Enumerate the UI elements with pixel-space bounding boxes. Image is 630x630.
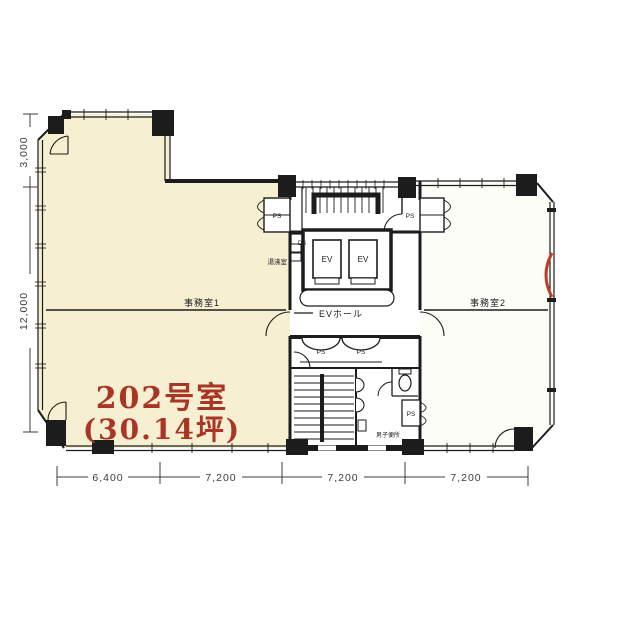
elevator-bank	[291, 230, 394, 306]
pipe-shaft-niche-right-label: PS	[357, 349, 366, 356]
pipe-shaft-lower-right-label: PS	[407, 411, 416, 418]
floor-plan-page: 事務室1 事務室2 EVホール 湯沸室 男子便所 EV EV PS PS PS …	[0, 0, 630, 630]
dim-bottom-4: 7,200	[450, 472, 481, 484]
office2-label: 事務室2	[470, 297, 506, 308]
pipe-shaft-upper-left-label: PS	[273, 213, 282, 220]
dim-bottom-2: 7,200	[205, 472, 236, 484]
pipe-shaft-upper-right-label: PS	[406, 213, 415, 220]
dim-left-top: 3,000	[18, 136, 30, 167]
office1-label: 事務室1	[184, 297, 220, 308]
mens-toilet-label: 男子便所	[376, 431, 400, 439]
floor-plan-drawing: 事務室1 事務室2 EVホール 湯沸室 男子便所 EV EV PS PS PS …	[0, 0, 630, 630]
dim-bottom-3: 7,200	[327, 472, 358, 484]
dim-left-main: 12,000	[18, 292, 30, 330]
unit-number-label: 202号室	[96, 381, 229, 416]
ev-hall-label: EVホール	[319, 309, 363, 319]
dim-bottom-1: 6,400	[92, 472, 123, 484]
unit-area-label: (30.14坪)	[83, 413, 241, 446]
elevator-1-label: EV	[322, 255, 333, 264]
kitchenette-label: 湯沸室	[268, 257, 288, 266]
duct-shaft-label: DS	[298, 241, 306, 247]
elevator-2-label: EV	[358, 255, 369, 264]
pipe-shaft-niche-left-label: PS	[317, 349, 326, 356]
